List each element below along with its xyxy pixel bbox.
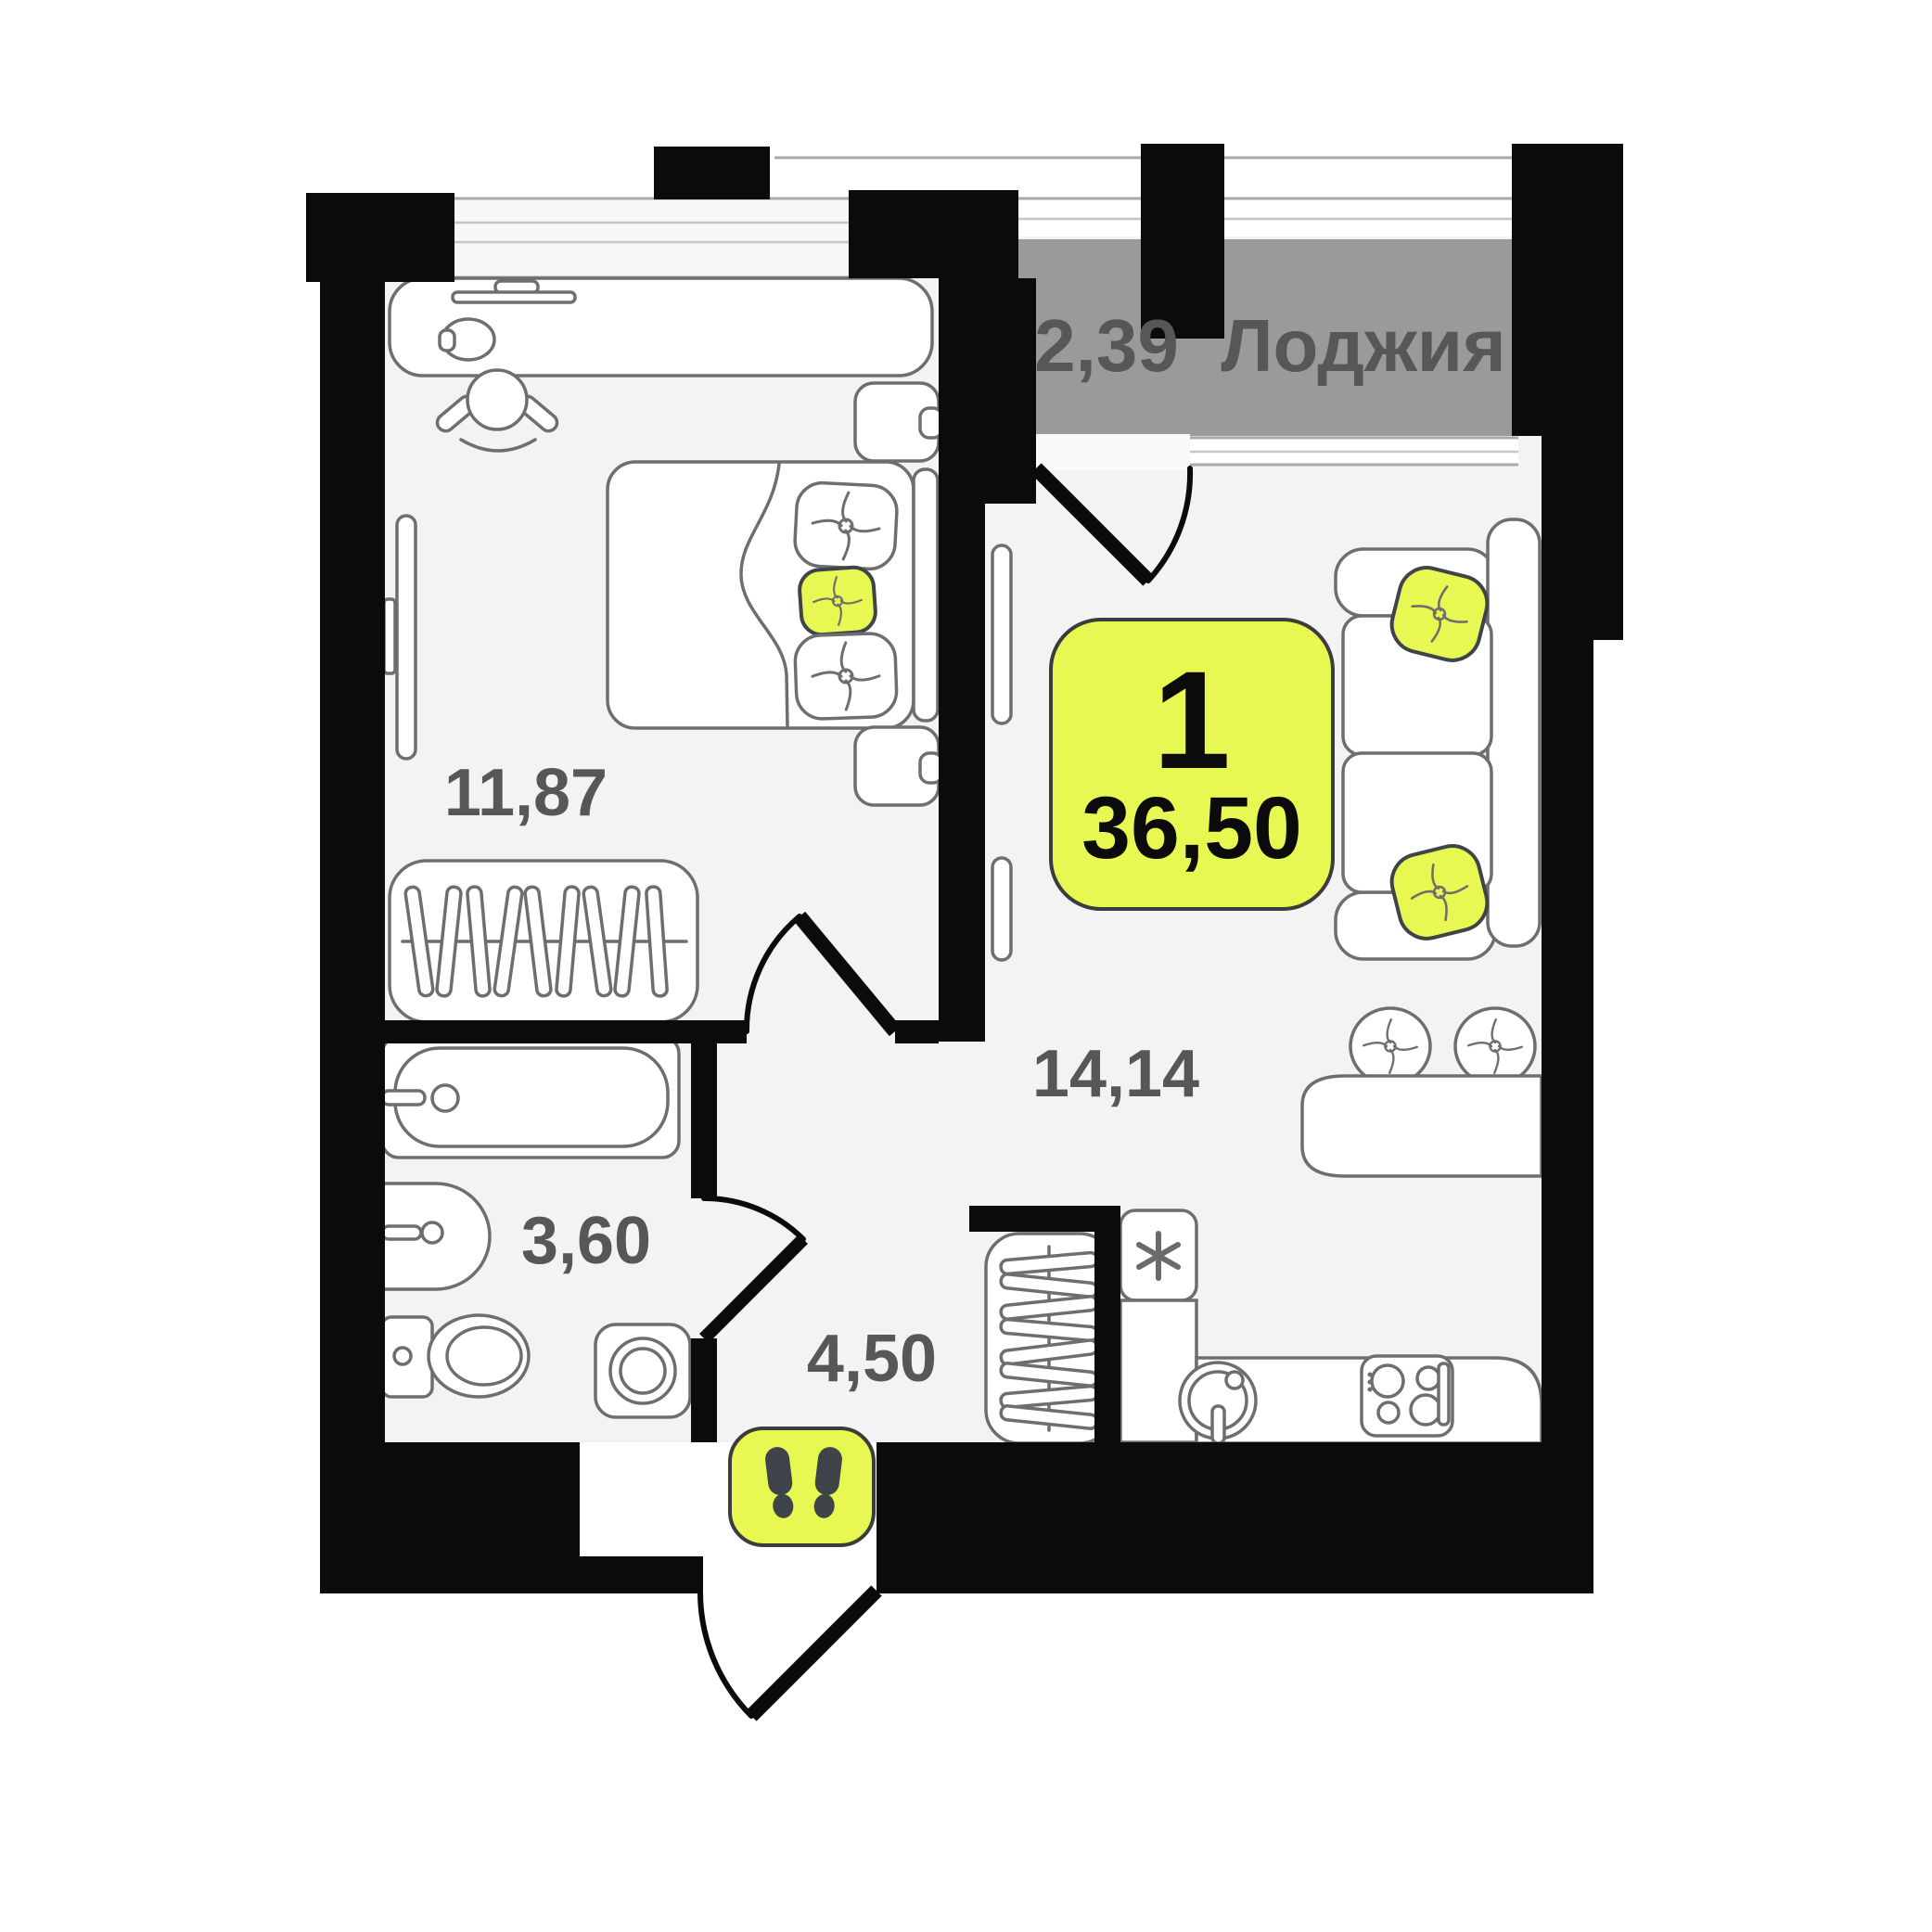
pillow xyxy=(794,481,899,570)
living-area-label: 14,14 xyxy=(1032,1037,1199,1111)
sink xyxy=(382,1184,490,1289)
door-entrance xyxy=(700,1591,876,1716)
bed-headboard xyxy=(914,469,938,721)
hallway-area-label: 4,50 xyxy=(807,1322,937,1396)
washing-machine xyxy=(595,1324,690,1417)
stove xyxy=(1362,1356,1452,1436)
bedroom-area-label: 11,87 xyxy=(444,756,608,830)
wardrobe-hallway xyxy=(986,1234,1113,1443)
fridge xyxy=(1120,1210,1196,1300)
bed xyxy=(608,462,938,728)
toilet xyxy=(382,1315,529,1397)
hallway-furniture xyxy=(986,1234,1113,1443)
entrance-badge xyxy=(730,1428,874,1545)
pillow xyxy=(794,633,897,720)
pillow-accent xyxy=(799,566,877,635)
radiator-living xyxy=(992,858,1011,960)
entrance-niche xyxy=(580,1442,703,1556)
dining-chair xyxy=(1350,1008,1430,1084)
loggia-name-label: Лоджия xyxy=(1221,304,1505,387)
wardrobe-bedroom xyxy=(390,861,697,1022)
balcony-door-opening xyxy=(1036,434,1190,470)
apartment-badge: 1 36,50 xyxy=(1051,620,1333,909)
window-loggia-living xyxy=(1190,436,1518,466)
loggia-area-label: 2,39 xyxy=(1034,304,1179,387)
floor-plan: 1 36,50 2,39 Лоджия 11,87 14,14 3,60 4,5… xyxy=(0,0,1932,1932)
nightstand xyxy=(855,727,942,805)
dining-chair xyxy=(1455,1008,1535,1084)
radiator-living xyxy=(992,545,1011,723)
bathroom-area-label: 3,60 xyxy=(521,1204,651,1278)
badge-rooms-count: 1 xyxy=(1153,642,1230,798)
sofa xyxy=(1336,519,1540,959)
nightstand xyxy=(855,383,942,461)
bathtub xyxy=(382,1037,679,1158)
dining-table xyxy=(1302,1076,1542,1176)
badge-total-area: 36,50 xyxy=(1081,779,1302,877)
